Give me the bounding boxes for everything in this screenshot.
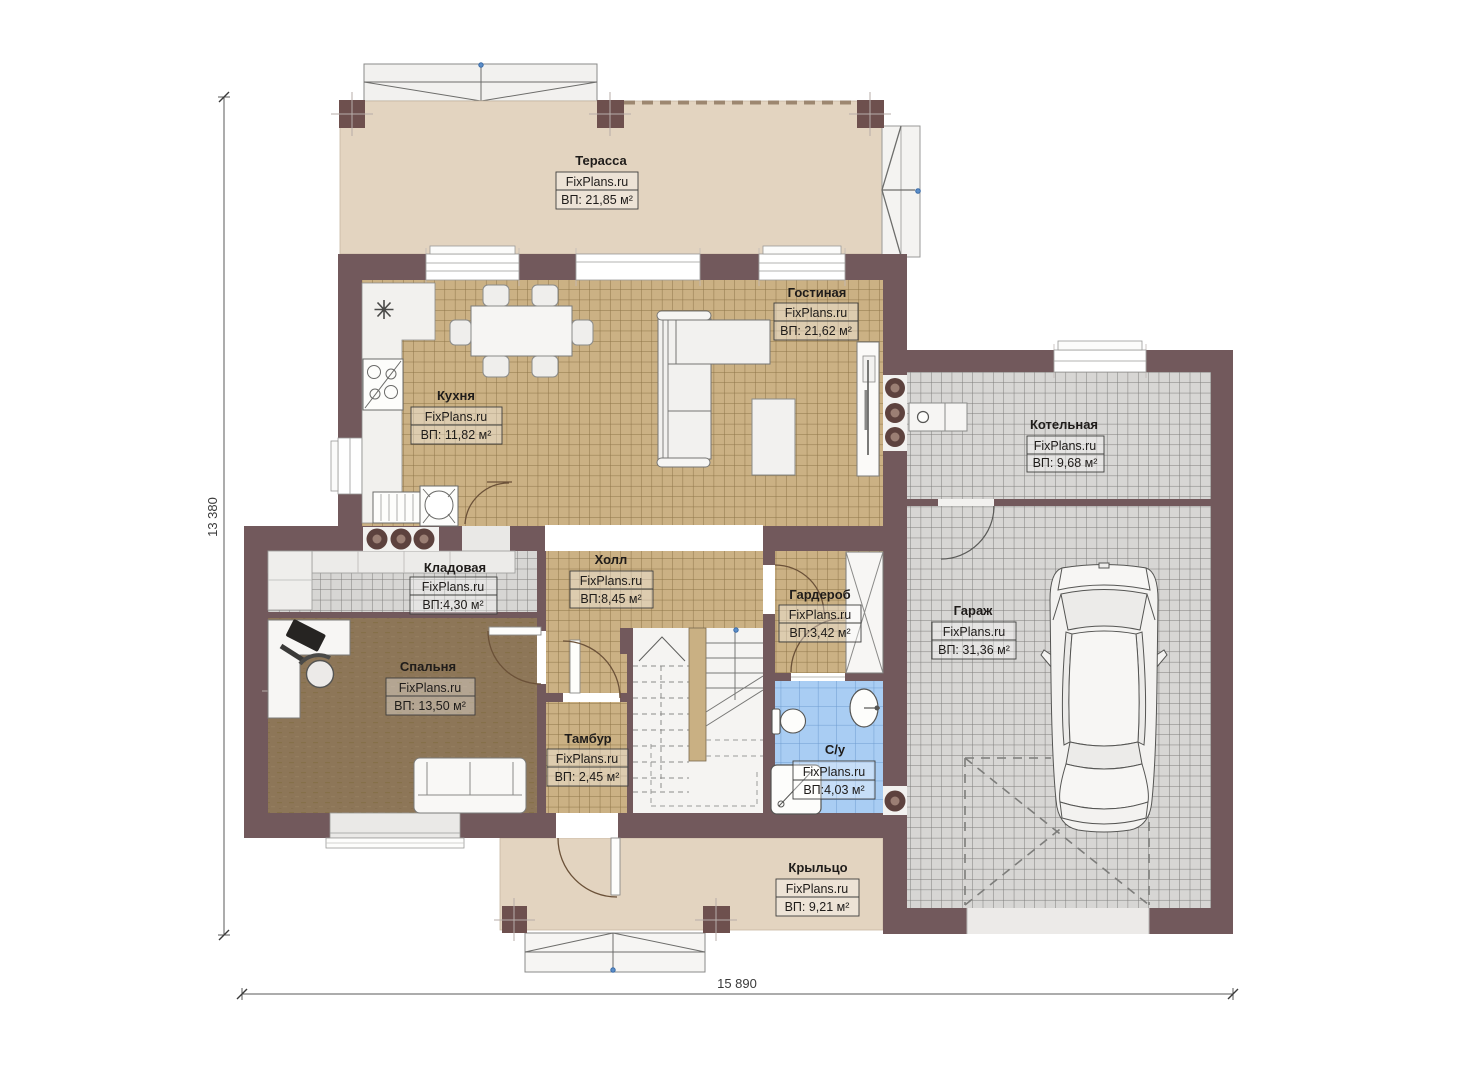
svg-text:Гараж: Гараж [954, 603, 994, 618]
svg-text:ВП: 9,21 м²: ВП: 9,21 м² [785, 900, 850, 914]
svg-text:15 890: 15 890 [717, 976, 757, 991]
svg-text:FixPlans.ru: FixPlans.ru [425, 410, 488, 424]
svg-text:ВП: 13,50 м²: ВП: 13,50 м² [394, 699, 466, 713]
svg-text:ВП: 2,45 м²: ВП: 2,45 м² [555, 770, 620, 784]
svg-text:ВП: 21,62 м²: ВП: 21,62 м² [780, 324, 852, 338]
svg-text:FixPlans.ru: FixPlans.ru [399, 681, 462, 695]
svg-text:FixPlans.ru: FixPlans.ru [1034, 439, 1097, 453]
svg-text:Крыльцо: Крыльцо [788, 860, 847, 875]
svg-text:Кладовая: Кладовая [424, 560, 486, 575]
svg-text:Кухня: Кухня [437, 388, 475, 403]
svg-text:FixPlans.ru: FixPlans.ru [789, 608, 852, 622]
svg-text:ВП: 21,85 м²: ВП: 21,85 м² [561, 193, 633, 207]
svg-text:ВП: 31,36 м²: ВП: 31,36 м² [938, 643, 1010, 657]
svg-text:FixPlans.ru: FixPlans.ru [943, 625, 1006, 639]
svg-text:FixPlans.ru: FixPlans.ru [785, 306, 848, 320]
svg-text:С/у: С/у [825, 742, 846, 757]
svg-text:Спальня: Спальня [400, 659, 456, 674]
svg-text:ВП: 11,82 м²: ВП: 11,82 м² [421, 428, 492, 442]
svg-text:ВП: 9,68 м²: ВП: 9,68 м² [1033, 456, 1098, 470]
svg-text:FixPlans.ru: FixPlans.ru [786, 882, 849, 896]
svg-text:ВП:4,03 м²: ВП:4,03 м² [803, 783, 864, 797]
svg-text:Терасса: Терасса [575, 153, 627, 168]
svg-text:FixPlans.ru: FixPlans.ru [566, 175, 629, 189]
svg-text:ВП:3,42 м²: ВП:3,42 м² [789, 626, 850, 640]
svg-text:13 380: 13 380 [205, 497, 220, 537]
svg-text:FixPlans.ru: FixPlans.ru [803, 765, 866, 779]
svg-text:ВП:4,30 м²: ВП:4,30 м² [422, 598, 483, 612]
svg-text:FixPlans.ru: FixPlans.ru [556, 752, 619, 766]
svg-text:Холл: Холл [595, 552, 628, 567]
svg-text:Тамбур: Тамбур [564, 731, 611, 746]
svg-text:Гостиная: Гостиная [788, 285, 847, 300]
svg-text:FixPlans.ru: FixPlans.ru [422, 580, 485, 594]
svg-text:ВП:8,45 м²: ВП:8,45 м² [580, 592, 641, 606]
svg-text:Котельная: Котельная [1030, 417, 1098, 432]
svg-text:FixPlans.ru: FixPlans.ru [580, 574, 643, 588]
svg-text:Гардероб: Гардероб [789, 587, 850, 602]
